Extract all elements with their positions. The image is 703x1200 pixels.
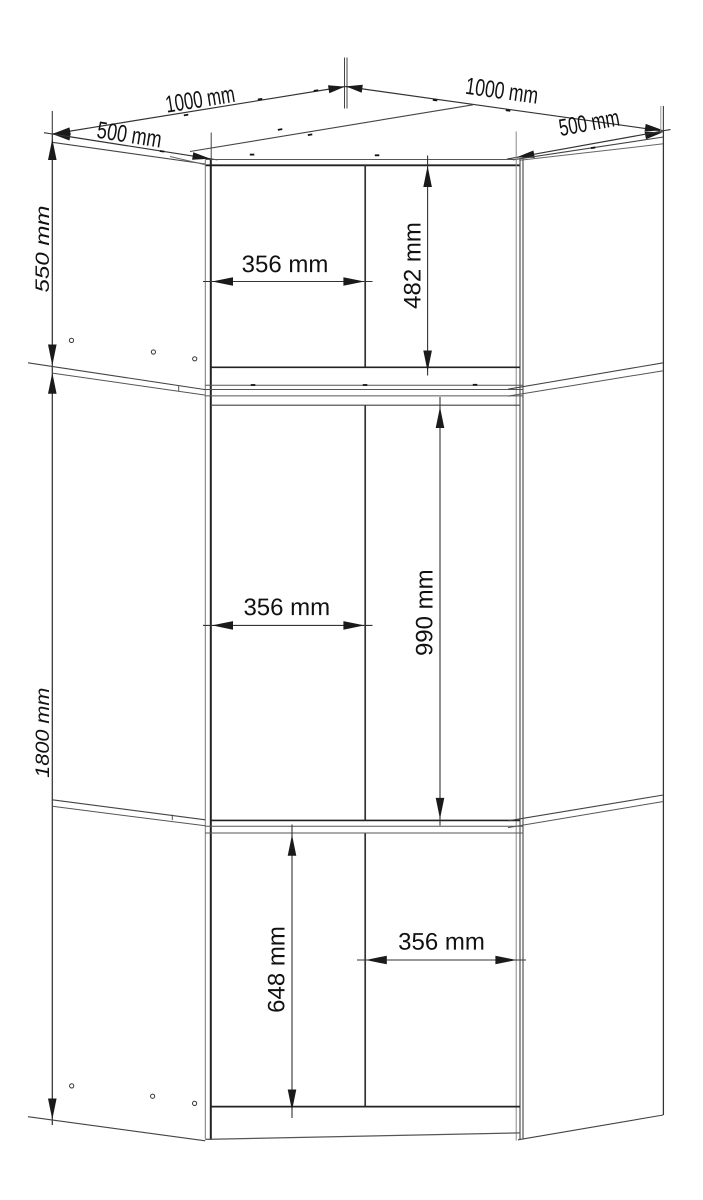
svg-text:550 mm: 550 mm (33, 206, 54, 293)
svg-text:356 mm: 356 mm (243, 594, 330, 621)
svg-text:648 mm: 648 mm (263, 926, 290, 1013)
svg-text:356 mm: 356 mm (398, 929, 485, 956)
svg-text:1800 mm: 1800 mm (33, 688, 54, 778)
svg-text:990 mm: 990 mm (412, 569, 439, 656)
svg-text:482 mm: 482 mm (400, 222, 427, 309)
svg-text:356 mm: 356 mm (242, 251, 329, 278)
